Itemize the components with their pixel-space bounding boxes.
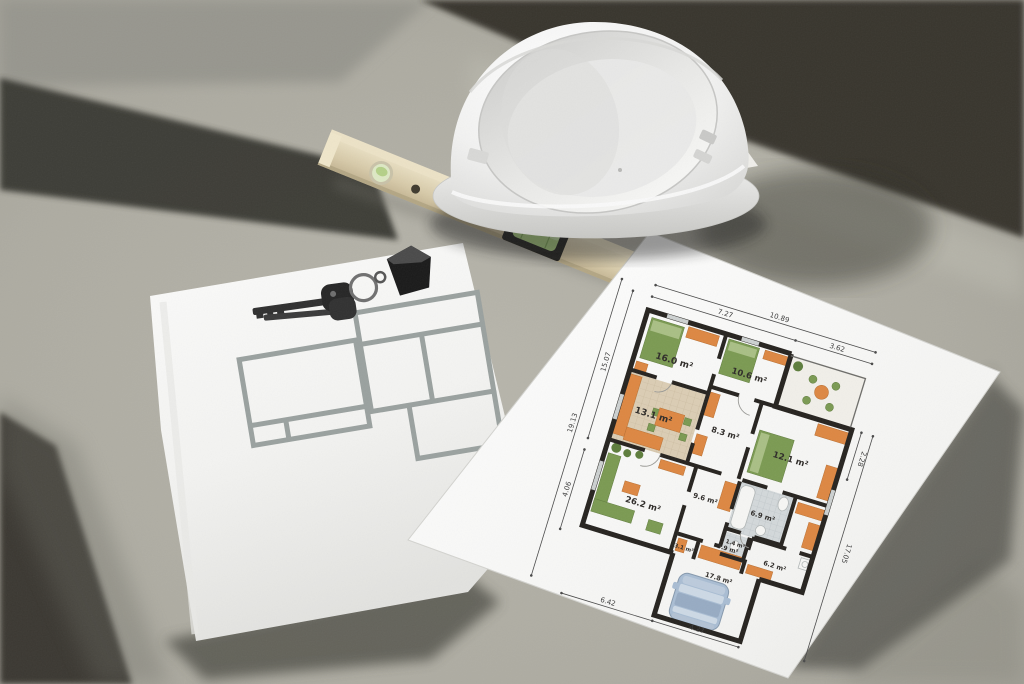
construction-scene: 16.0 m² 10.6 m² 13.1 m² 8.3 m² 12.1 m² 2… <box>0 0 1024 684</box>
scene-canvas: 16.0 m² 10.6 m² 13.1 m² 8.3 m² 12.1 m² 2… <box>0 0 1024 684</box>
